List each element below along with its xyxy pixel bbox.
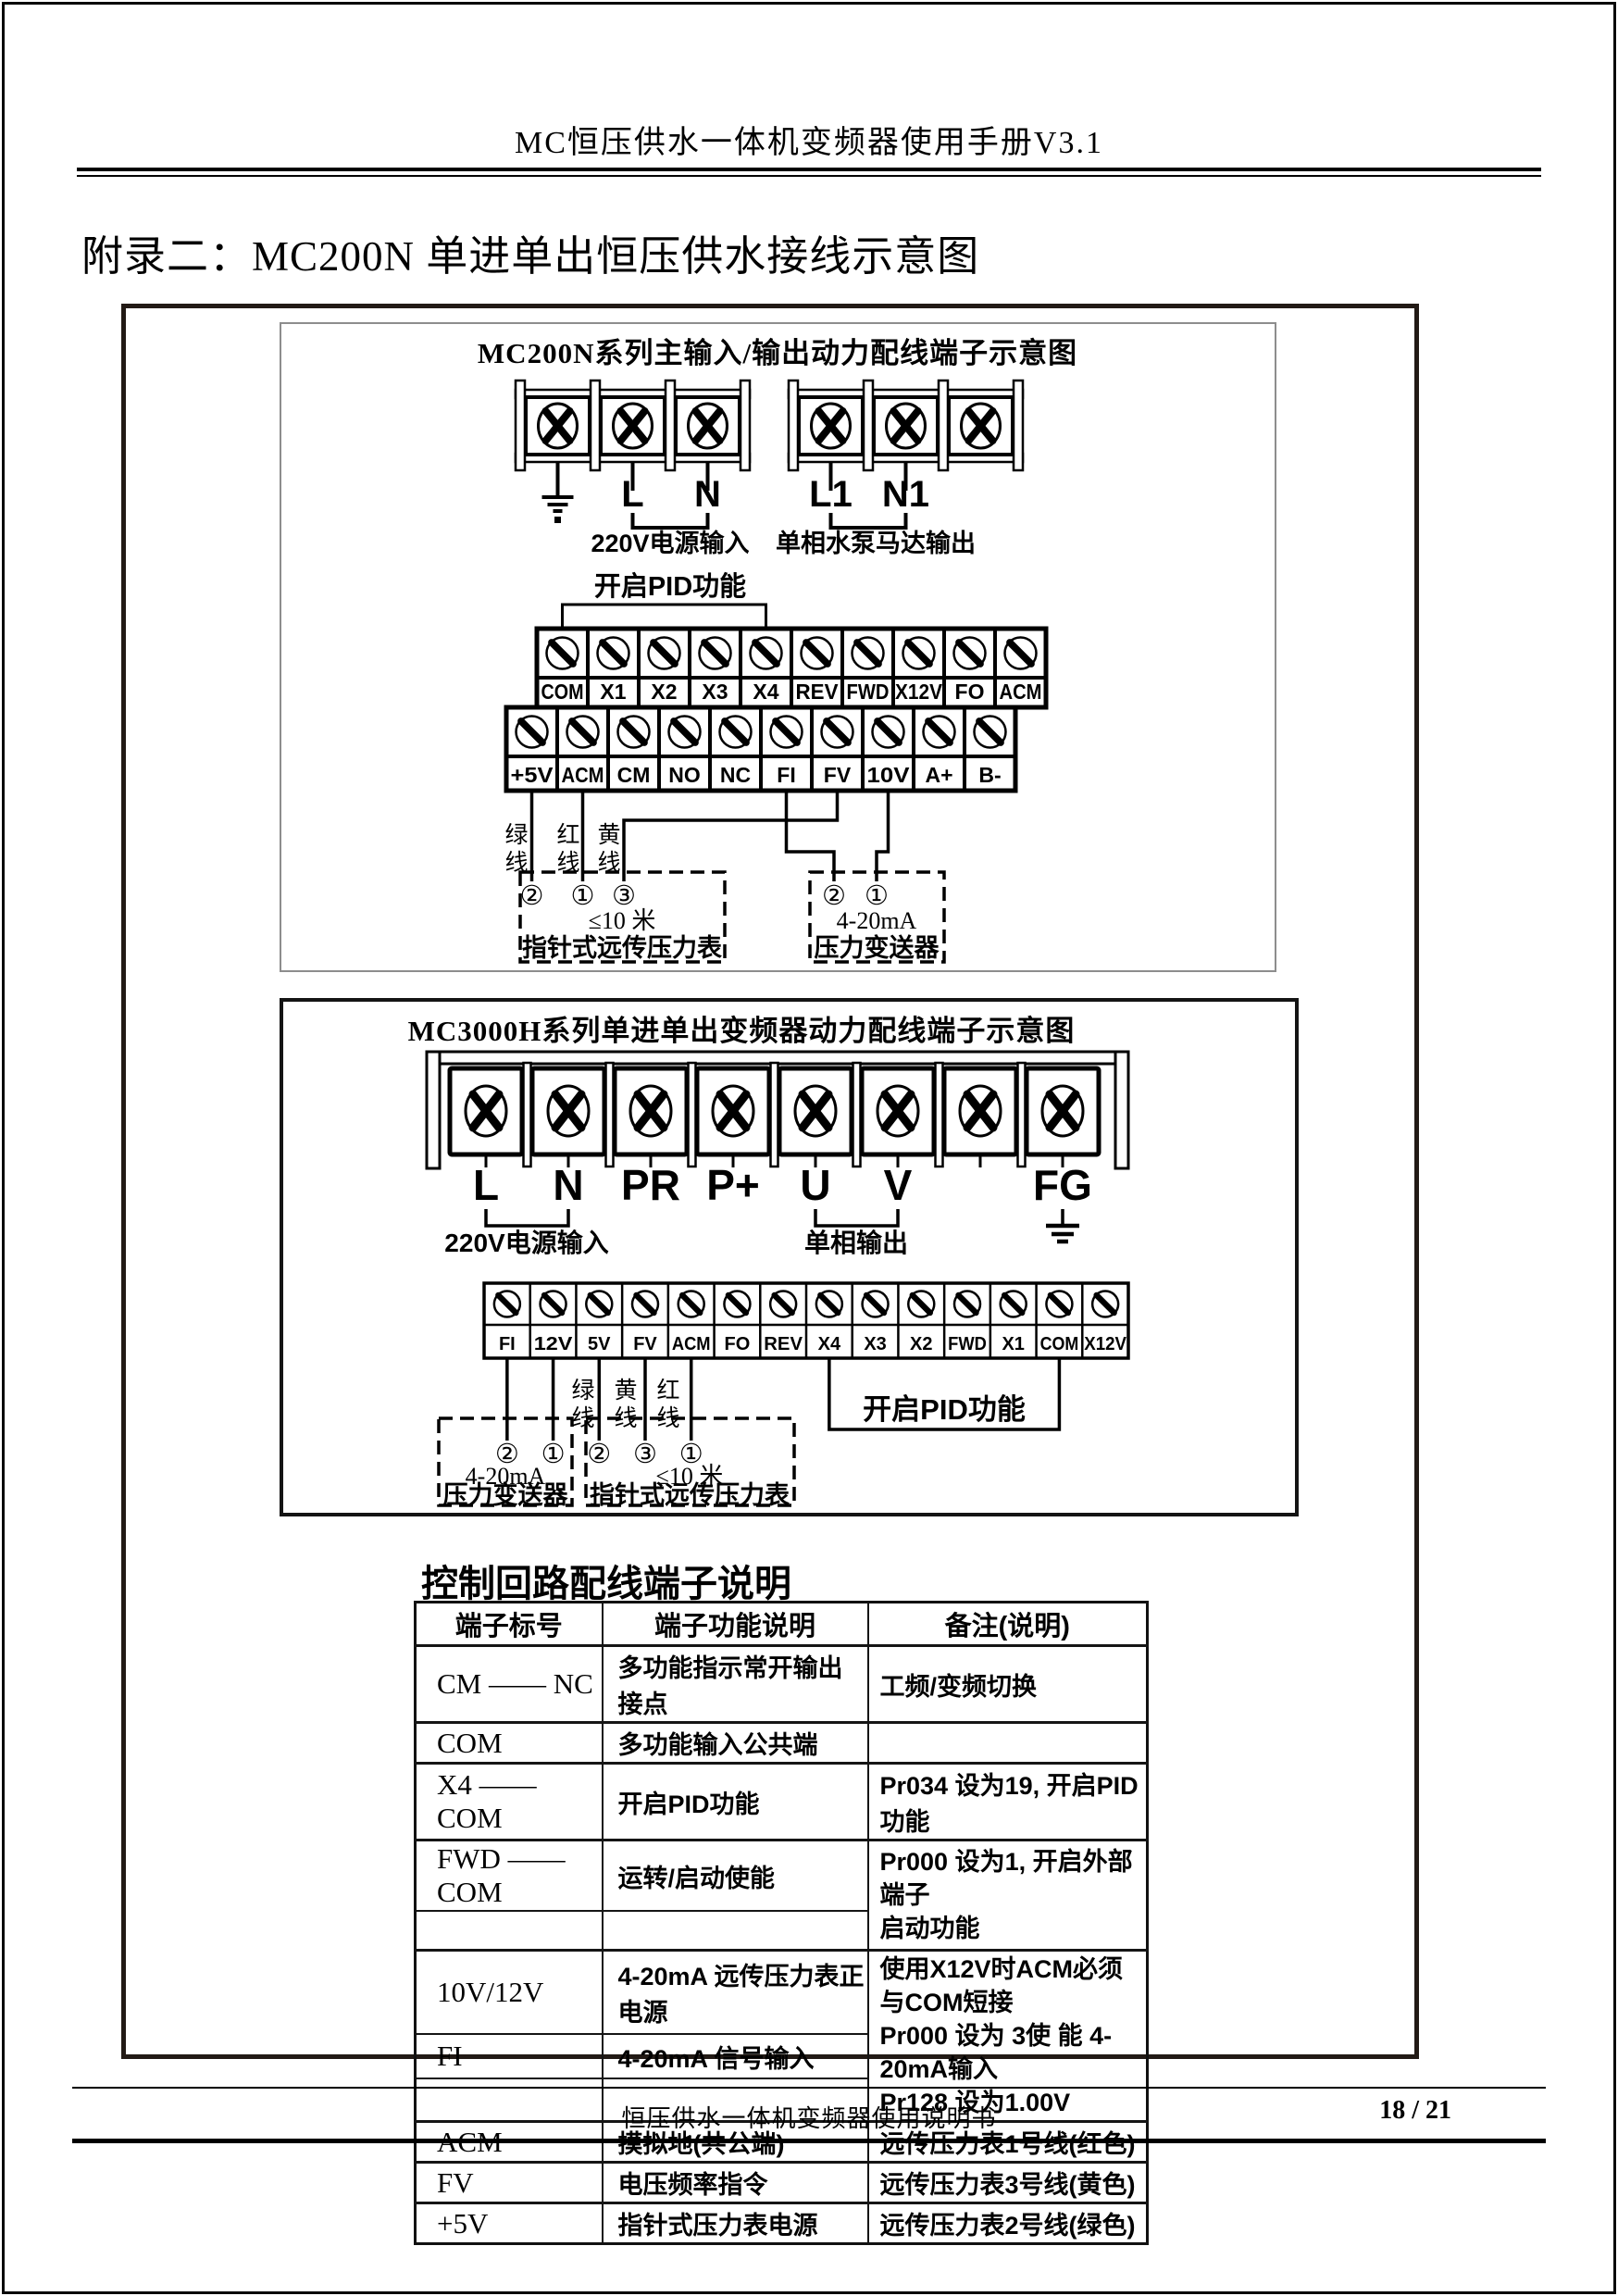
terminal-label: FI (499, 1334, 516, 1354)
table-header-cell: 端子功能说明 (603, 1603, 868, 1646)
block-post (771, 1063, 778, 1167)
pin-number: ③ (633, 1440, 657, 1469)
terminal-label: X4 (818, 1334, 841, 1354)
table-cell-line: 使用X12V时ACM必须与COM短接 (880, 1953, 1146, 2019)
pin-number: ② (822, 881, 846, 911)
block-post (864, 381, 873, 470)
table-row: CM —— NC多功能指示常开输出接点工频/变频切换 (416, 1646, 1148, 1723)
block-post (1018, 1063, 1026, 1167)
table-cell: 10V/12V (416, 1951, 603, 2035)
pin-number: ① (571, 881, 595, 911)
block-post (516, 381, 525, 470)
table-cell: Pr034 设为19, 开启PID功能 (868, 1764, 1148, 1841)
terminal-label: 10V (867, 763, 911, 787)
wire-line (787, 791, 835, 881)
terminal-label: +5V (511, 763, 554, 787)
table-cell: 4-20mA 远传压力表正电源 (603, 1951, 868, 2035)
table-cell: 远传压力表2号线(绿色) (868, 2203, 1148, 2244)
power-terminal-label: U (800, 1161, 830, 1209)
terminal-label: NC (720, 763, 751, 787)
bracket-line (831, 513, 906, 528)
terminal-label: B- (978, 763, 1001, 787)
header-rule-thick (77, 168, 1541, 171)
table-cell: 远传压力表3号线(黄色) (868, 2163, 1148, 2203)
gauge-box-label: 指针式远传压力表 (522, 934, 722, 962)
block-post (1115, 1052, 1128, 1168)
table-cell: +5V (416, 2203, 603, 2244)
block-post (591, 381, 600, 470)
table-header-cell: 端子标号 (416, 1603, 603, 1646)
footer-rule-bottom (72, 2139, 1546, 2143)
ground-dot (554, 517, 561, 523)
block-post (1014, 381, 1023, 470)
power-terminal-label: P+ (706, 1161, 760, 1209)
diagram2-generated: LNPRP+UVFGFI12V5VFVACMFOREVX4X3X2FWDX1CO… (427, 1052, 1128, 1505)
pin-number: ③ (612, 881, 636, 911)
terminal-label: FV (824, 763, 852, 787)
pid-enable-label: 开启PID功能 (594, 571, 746, 602)
terminal-label: REV (796, 680, 840, 704)
terminal-label: ACM (672, 1334, 711, 1354)
table-cell: 多功能输入公共端 (603, 1723, 868, 1764)
pin-number: ① (541, 1440, 566, 1469)
terminal-label: FO (955, 680, 985, 704)
pin-number: ② (520, 881, 544, 911)
table-cell: 运转/启动使能 (603, 1841, 868, 1912)
block-post (689, 1063, 696, 1167)
terminal-label: REV (764, 1334, 803, 1354)
table-cell: 4-20mA 信号输入 (603, 2034, 868, 2078)
terminal-label: X2 (910, 1334, 932, 1354)
terminal-description-table: 端子标号端子功能说明备注(说明) CM —— NC多功能指示常开输出接点工频/变… (414, 1601, 1149, 2245)
terminal-label: X12V (895, 680, 943, 704)
diagram-mc200n: MC200N系列主输入/输出动力配线端子示意图 220V电源输入 单相水泵马达输… (280, 322, 1276, 972)
table-cell: 使用X12V时ACM必须与COM短接Pr000 设为 3使 能 4-20mA输入… (868, 1951, 1148, 2122)
table-cell: FI (416, 2034, 603, 2078)
table-cell: FWD —— COM (416, 1841, 603, 1912)
diagram1-generated: LNL1N1COMX1X2X3X4REVFWDX12VFOACM+5VACMCM… (504, 381, 1046, 962)
wire-line (877, 791, 889, 881)
terminal-label: X1 (1002, 1334, 1024, 1354)
terminal-label: X12V (1084, 1334, 1126, 1354)
pin-number: ① (679, 1440, 703, 1469)
terminal-label: X3 (702, 680, 728, 704)
table-cell: X4 —— COM (416, 1764, 603, 1841)
power-input-caption2: 220V电源输入 (444, 1228, 608, 1257)
terminal-label: X4 (753, 680, 778, 704)
block-post (789, 381, 798, 470)
bracket-line (633, 513, 708, 528)
table-cell: 多功能指示常开输出接点 (603, 1646, 868, 1723)
block-post (427, 1052, 440, 1168)
terminal-label: ACM (1000, 680, 1042, 704)
page-number: 18 / 21 (1314, 2096, 1451, 2126)
table-cell-line: Pr000 设为1, 开启外部端子 (880, 1845, 1146, 1912)
power-terminal-label: FG (1033, 1161, 1092, 1209)
terminal-label: COM (541, 680, 584, 704)
terminal-label: FWD (847, 680, 890, 704)
block-post (936, 1063, 943, 1167)
table-row: +5V指针式压力表电源远传压力表2号线(绿色) (416, 2203, 1148, 2244)
pin-number: ① (865, 881, 889, 911)
table-cell-line: 启动功能 (880, 1912, 1146, 1945)
terminal-label: 5V (588, 1334, 611, 1354)
pin-number: ② (587, 1440, 611, 1469)
power-input-caption: 220V电源输入 (591, 529, 749, 557)
table-row: COM多功能输入公共端 (416, 1723, 1148, 1764)
terminal-label: 12V (534, 1334, 573, 1354)
terminal-label: NO (668, 763, 701, 787)
power-terminal-label: PR (621, 1161, 680, 1209)
wire-color-label: 红线 (556, 822, 579, 876)
table-body: CM —— NC多功能指示常开输出接点工频/变频切换COM多功能输入公共端X4 … (416, 1646, 1148, 2244)
terminal-label: A+ (925, 763, 952, 787)
gauge-distance-label: ≤10 米 (589, 907, 656, 934)
table-title: 控制回路配线端子说明 (421, 1554, 791, 1607)
wire-color-label: 黄线 (597, 822, 620, 876)
terminal-label: ACM (562, 763, 604, 787)
table-cell (868, 1723, 1148, 1764)
block-post (853, 1063, 861, 1167)
wire-line (624, 791, 838, 881)
power-terminal-label: L (473, 1161, 499, 1209)
bracket-line (486, 1209, 568, 1226)
table-cell (416, 1911, 603, 1951)
table-cell: 工频/变频切换 (868, 1646, 1148, 1723)
power-terminal-label: N (553, 1161, 583, 1209)
terminal-label: FI (777, 763, 795, 787)
header-rule-thin (77, 175, 1541, 177)
block-post (741, 381, 750, 470)
table-cell: FV (416, 2163, 603, 2203)
table-cell: Pr000 设为1, 开启外部端子启动功能 (868, 1841, 1148, 1951)
block-post (524, 1063, 531, 1167)
manual-page: { "page": { "header_title": "MC恒压供水一体机变频… (0, 0, 1618, 2296)
footer-rule-top (72, 2087, 1546, 2089)
block-post (666, 381, 675, 470)
terminal-label: FO (725, 1334, 751, 1354)
bracket-line (815, 1209, 898, 1226)
terminal-label: FV (633, 1334, 657, 1354)
block-post (606, 1063, 614, 1167)
pid-enable-label2: 开启PID功能 (863, 1393, 1026, 1426)
table-cell: 指针式压力表电源 (603, 2203, 868, 2244)
terminal-label: X2 (651, 680, 677, 704)
diagram1-title: MC200N系列主输入/输出动力配线端子示意图 (478, 337, 1077, 369)
single-phase-output-caption: 单相输出 (804, 1228, 908, 1257)
power-terminal-label: V (884, 1161, 913, 1209)
header-title: MC恒压供水一体机变频器使用手册V3.1 (77, 117, 1541, 162)
table-cell: 电压频率指令 (603, 2163, 868, 2203)
table-row: 10V/12V4-20mA 远传压力表正电源使用X12V时ACM必须与COM短接… (416, 1951, 1148, 2035)
terminal-label: X1 (600, 680, 626, 704)
table-cell: 开启PID功能 (603, 1764, 868, 1841)
diagram-mc3000h: MC3000H系列单进单出变频器动力配线端子示意图 220V电源输入 单相输出 … (280, 998, 1299, 1516)
table-row: X4 —— COM开启PID功能Pr034 设为19, 开启PID功能 (416, 1764, 1148, 1841)
transmitter-box-label: 压力变送器 (815, 933, 940, 962)
page-title: 附录二：MC200N 单进单出恒压供水接线示意图 (81, 222, 979, 282)
wire-color-label: 绿线 (504, 822, 528, 876)
diagram2-title: MC3000H系列单进单出变频器动力配线端子示意图 (408, 1015, 1076, 1047)
table-cell: CM —— NC (416, 1646, 603, 1723)
transmitter-signal-label: 4-20mA (837, 907, 917, 934)
pin-number: ② (495, 1440, 519, 1469)
table-header-cell: 备注(说明) (868, 1603, 1148, 1646)
table-cell-line: Pr000 设为 3使 能 4-20mA输入 (880, 2019, 1146, 2086)
table-head: 端子标号端子功能说明备注(说明) (416, 1603, 1148, 1646)
wire-color-label: 红线 (656, 1378, 679, 1431)
terminal-label: X3 (864, 1334, 886, 1354)
terminal-label: CM (617, 763, 651, 787)
table-row: FWD —— COM运转/启动使能Pr000 设为1, 开启外部端子启动功能 (416, 1841, 1148, 1912)
table-cell (603, 1911, 868, 1951)
pid-bracket (563, 605, 766, 629)
terminal-label: COM (1040, 1334, 1079, 1354)
table-row: FV电压频率指令远传压力表3号线(黄色) (416, 2163, 1148, 2203)
pump-output-caption: 单相水泵马达输出 (776, 529, 976, 557)
block-post (939, 381, 948, 470)
wire-color-label: 绿线 (571, 1378, 594, 1431)
table-cell: COM (416, 1723, 603, 1764)
wire-color-label: 黄线 (614, 1378, 637, 1431)
table-header-row: 端子标号端子功能说明备注(说明) (416, 1603, 1148, 1646)
terminal-label: FWD (948, 1334, 987, 1354)
